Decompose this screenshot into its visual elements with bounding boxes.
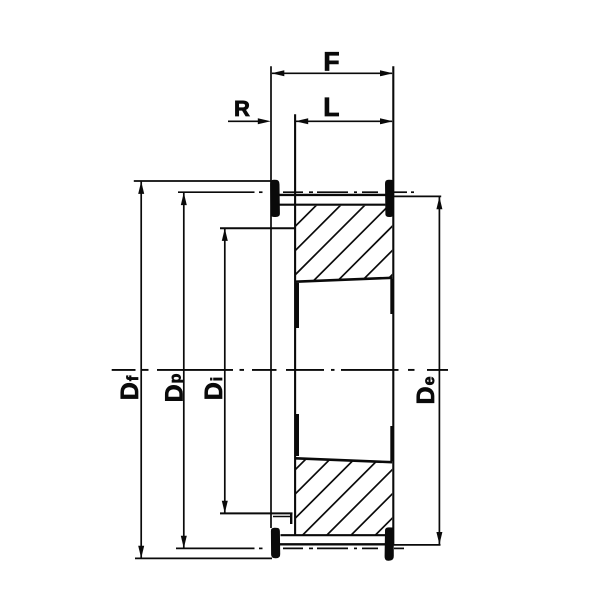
svg-text:L: L	[323, 92, 339, 122]
svg-text:R: R	[234, 96, 250, 121]
svg-text:F: F	[323, 46, 339, 76]
